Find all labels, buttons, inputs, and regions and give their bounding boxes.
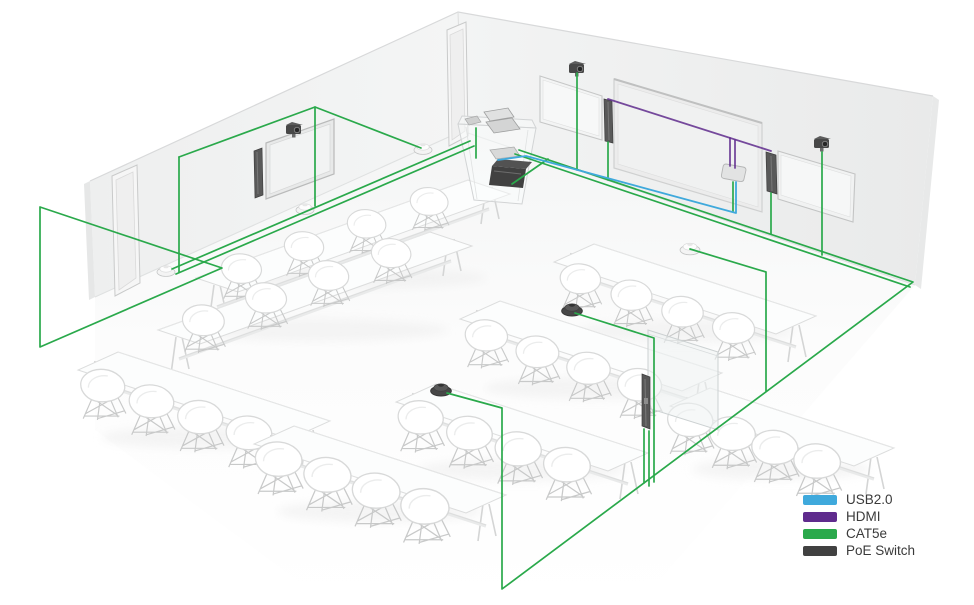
sound-bar <box>254 148 263 198</box>
legend-label: USB2.0 <box>846 492 893 507</box>
sound-bar <box>642 374 650 429</box>
legend-label: CAT5e <box>846 526 887 541</box>
legend-item: USB2.0 <box>803 491 915 508</box>
legend: USB2.0 HDMI CAT5e PoE Switch <box>803 491 915 559</box>
legend-label: PoE Switch <box>846 543 915 558</box>
hdmi-swatch <box>803 512 837 522</box>
sound-bar <box>604 99 613 143</box>
legend-item: CAT5e <box>803 525 915 542</box>
usb-swatch <box>803 495 837 505</box>
door <box>112 165 140 296</box>
room-diagram: USB2.0 HDMI CAT5e PoE Switch <box>0 0 974 605</box>
poe-swatch <box>803 546 837 556</box>
wall-plate <box>721 164 746 182</box>
legend-item: HDMI <box>803 508 915 525</box>
legend-label: HDMI <box>846 509 881 524</box>
chair <box>794 444 842 498</box>
sound-bar <box>766 152 777 194</box>
cat5e-swatch <box>803 529 837 539</box>
legend-item: PoE Switch <box>803 542 915 559</box>
poe-switch-front <box>489 166 526 188</box>
